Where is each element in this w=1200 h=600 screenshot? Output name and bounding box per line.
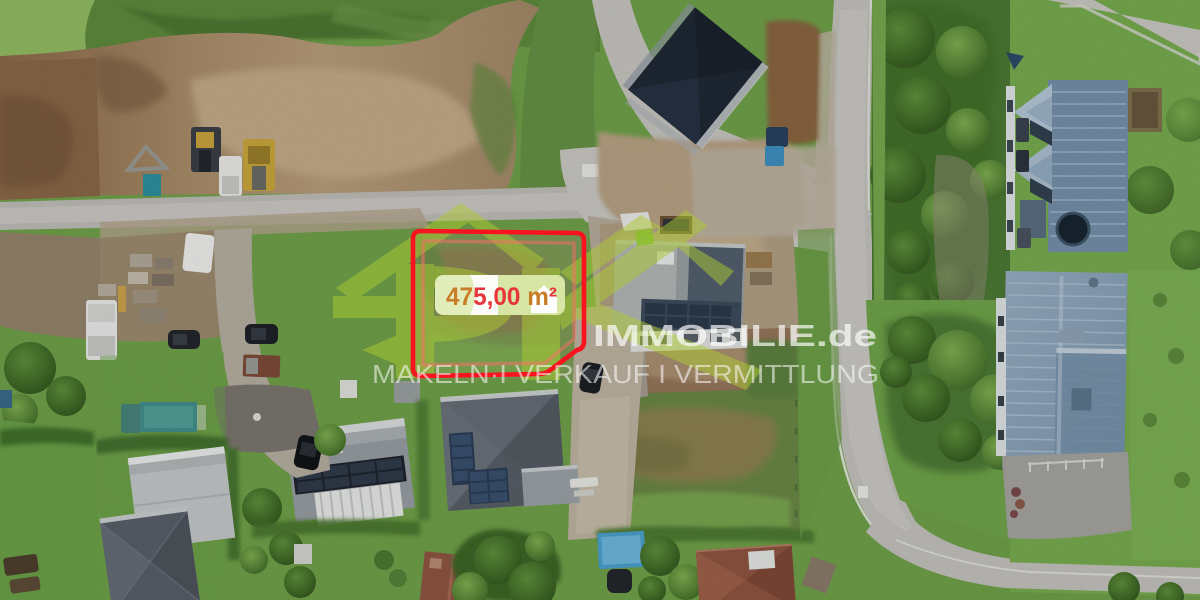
svg-text:IMMOBILIE.de: IMMOBILIE.de [593, 318, 877, 353]
svg-text:MAKELN·I VERKAUF I VERMITTLUNG: MAKELN·I VERKAUF I VERMITTLUNG [372, 359, 879, 389]
svg-text:475,00 m²: 475,00 m² [446, 283, 557, 311]
